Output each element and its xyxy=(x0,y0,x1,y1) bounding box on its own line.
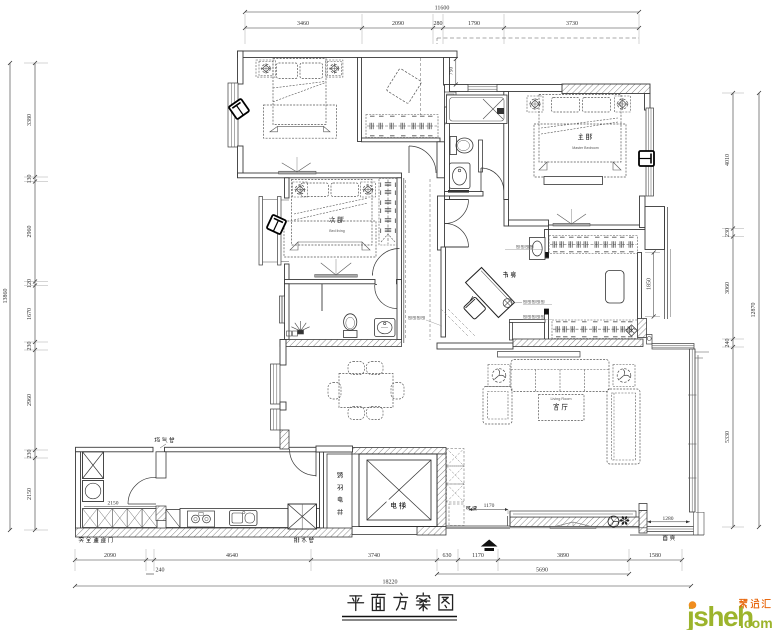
svg-text:230: 230 xyxy=(725,228,731,237)
svg-text:280: 280 xyxy=(434,21,443,27)
svg-text:3060: 3060 xyxy=(725,282,731,294)
svg-text:3740: 3740 xyxy=(368,553,380,559)
svg-text:230: 230 xyxy=(27,342,33,351)
svg-text:230: 230 xyxy=(27,450,33,459)
svg-text:2090: 2090 xyxy=(104,553,116,559)
svg-text:1280: 1280 xyxy=(663,516,674,522)
svg-text:4640: 4640 xyxy=(226,553,238,559)
svg-text:5330: 5330 xyxy=(725,431,731,443)
svg-text:2150: 2150 xyxy=(108,501,119,507)
svg-text:1790: 1790 xyxy=(468,21,480,27)
svg-text:Master Bedroom: Master Bedroom xyxy=(572,146,599,150)
svg-text:1170: 1170 xyxy=(472,553,484,559)
svg-text:13860: 13860 xyxy=(3,289,9,304)
svg-text:2960: 2960 xyxy=(27,394,33,406)
svg-text:2090: 2090 xyxy=(392,21,404,27)
svg-text:Living Room: Living Room xyxy=(550,397,571,401)
svg-text:5690: 5690 xyxy=(536,568,548,574)
svg-text:120: 120 xyxy=(27,279,33,288)
svg-text:18220: 18220 xyxy=(383,580,398,586)
svg-text:750: 750 xyxy=(449,67,455,76)
svg-text:1850: 1850 xyxy=(647,278,653,290)
svg-text:3460: 3460 xyxy=(297,21,309,27)
svg-text:130: 130 xyxy=(27,175,33,184)
svg-text:1580: 1580 xyxy=(649,553,661,559)
svg-text:2150: 2150 xyxy=(27,488,33,500)
svg-text:240: 240 xyxy=(156,568,165,574)
svg-text:240: 240 xyxy=(725,339,731,348)
svg-text:1170: 1170 xyxy=(484,503,495,509)
svg-text:4010: 4010 xyxy=(725,154,731,166)
svg-text:3890: 3890 xyxy=(557,553,569,559)
svg-text:11600: 11600 xyxy=(435,6,450,12)
svg-text:12870: 12870 xyxy=(751,303,757,318)
svg-text:Bed living: Bed living xyxy=(329,229,345,233)
svg-text:630: 630 xyxy=(443,553,452,559)
svg-text:2960: 2960 xyxy=(27,226,33,238)
svg-text:3380: 3380 xyxy=(27,114,33,126)
svg-text:3730: 3730 xyxy=(566,21,578,27)
svg-text:1670: 1670 xyxy=(27,308,33,320)
svg-text:.com: .com xyxy=(740,615,773,630)
